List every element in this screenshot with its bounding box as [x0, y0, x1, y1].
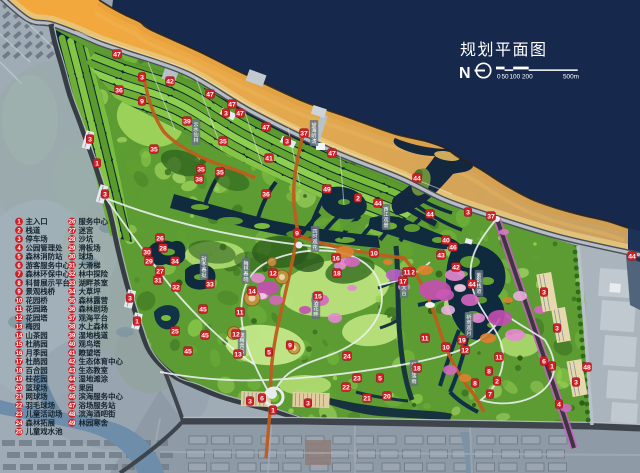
svg-text:羽毛球场: 羽毛球场: [26, 401, 56, 410]
svg-text:科普展示平台: 科普展示平台: [26, 278, 71, 287]
svg-text:11: 11: [16, 307, 23, 313]
svg-text:23: 23: [16, 412, 23, 418]
svg-text:35: 35: [150, 147, 158, 154]
svg-text:滑板场: 滑板场: [79, 243, 102, 252]
svg-text:5: 5: [267, 350, 271, 357]
svg-text:500m: 500m: [563, 74, 579, 81]
svg-text:栈道: 栈道: [26, 226, 41, 235]
svg-text:44: 44: [628, 254, 636, 261]
svg-text:6: 6: [260, 396, 264, 403]
svg-text:3: 3: [248, 399, 252, 406]
svg-text:19: 19: [16, 377, 23, 383]
svg-text:景观栈桥: 景观栈桥: [25, 287, 56, 296]
svg-text:9: 9: [288, 343, 292, 350]
svg-text:18: 18: [413, 366, 421, 373]
svg-text:森林剧场: 森林剧场: [79, 305, 109, 314]
svg-text:27: 27: [69, 228, 76, 234]
svg-text:47: 47: [206, 92, 214, 99]
svg-text:16: 16: [332, 256, 340, 263]
svg-text:32: 32: [172, 285, 180, 292]
svg-text:瞭望塔: 瞭望塔: [79, 348, 102, 357]
svg-text:球场: 球场: [79, 252, 94, 261]
svg-text:28: 28: [159, 246, 167, 253]
svg-text:林园寒舍: 林园寒舍: [79, 418, 109, 427]
svg-text:9: 9: [295, 231, 299, 238]
svg-text:12: 12: [16, 316, 23, 322]
svg-text:35: 35: [69, 298, 76, 304]
svg-text:望海听涛: 望海听涛: [311, 121, 316, 145]
svg-text:9: 9: [140, 99, 144, 106]
svg-text:12: 12: [461, 348, 469, 355]
svg-text:32: 32: [69, 272, 76, 278]
svg-text:梅林春晓: 梅林春晓: [243, 259, 249, 283]
svg-text:8: 8: [487, 369, 491, 376]
svg-text:3: 3: [88, 137, 92, 144]
svg-text:杜鹃园: 杜鹃园: [26, 340, 48, 349]
svg-text:果园: 果园: [78, 383, 94, 392]
svg-text:山茶园: 山茶园: [26, 331, 48, 340]
svg-text:1: 1: [95, 161, 99, 168]
svg-text:15: 15: [314, 294, 322, 301]
svg-text:35: 35: [216, 170, 224, 177]
svg-text:17: 17: [399, 279, 407, 286]
svg-text:11: 11: [421, 336, 428, 343]
svg-text:24: 24: [343, 354, 351, 361]
svg-text:百合园: 百合园: [26, 366, 48, 375]
svg-text:44: 44: [426, 212, 434, 219]
svg-text:38: 38: [69, 325, 76, 331]
svg-text:48: 48: [69, 412, 76, 418]
svg-text:耐冬春挺: 耐冬春挺: [201, 255, 207, 279]
svg-text:12: 12: [269, 271, 277, 278]
svg-text:观海平台: 观海平台: [79, 313, 109, 322]
svg-text:森林拓展: 森林拓展: [26, 418, 56, 427]
svg-text:湿地栈道: 湿地栈道: [79, 331, 109, 340]
svg-text:47: 47: [69, 403, 76, 409]
svg-text:42: 42: [452, 265, 460, 272]
svg-text:规划平面图: 规划平面图: [460, 41, 548, 59]
svg-text:3: 3: [224, 111, 228, 118]
svg-text:36: 36: [262, 192, 270, 199]
svg-text:森林消防站: 森林消防站: [26, 252, 64, 261]
svg-text:大滑梯: 大滑梯: [79, 261, 102, 270]
svg-text:1: 1: [271, 408, 275, 415]
svg-text:44: 44: [413, 176, 421, 183]
svg-text:21: 21: [16, 395, 23, 401]
svg-text:四时观花: 四时观花: [312, 228, 318, 251]
svg-text:大草坪: 大草坪: [79, 287, 102, 296]
svg-text:10: 10: [370, 251, 378, 258]
svg-text:网球场: 网球场: [26, 392, 49, 401]
svg-text:1: 1: [135, 319, 139, 326]
svg-text:浴场服务站: 浴场服务站: [79, 401, 117, 410]
svg-text:39: 39: [183, 119, 191, 126]
svg-text:13: 13: [234, 352, 242, 359]
svg-text:杜鹃园: 杜鹃园: [26, 357, 48, 366]
svg-text:8: 8: [473, 381, 477, 388]
svg-text:30: 30: [69, 255, 76, 261]
svg-text:36: 36: [69, 307, 76, 313]
svg-text:33: 33: [69, 281, 76, 287]
svg-text:主入口: 主入口: [26, 217, 48, 226]
svg-text:47: 47: [328, 151, 336, 158]
svg-text:N: N: [459, 65, 471, 82]
svg-text:林中探险: 林中探险: [79, 270, 109, 279]
svg-text:服务中心: 服务中心: [79, 217, 109, 226]
svg-text:3: 3: [285, 139, 289, 146]
svg-text:3: 3: [103, 192, 107, 199]
svg-text:18: 18: [333, 271, 341, 278]
svg-text:游客服务中心: 游客服务中心: [26, 261, 71, 270]
svg-text:3: 3: [140, 75, 144, 82]
svg-text:37: 37: [300, 131, 308, 138]
svg-text:湿地滩涂: 湿地滩涂: [79, 375, 109, 384]
svg-text:46: 46: [449, 245, 457, 252]
svg-text:20: 20: [16, 386, 23, 392]
svg-text:27: 27: [156, 269, 164, 276]
svg-text:49: 49: [69, 421, 76, 427]
svg-text:35: 35: [197, 167, 205, 174]
svg-text:公园管理处: 公园管理处: [26, 243, 64, 252]
svg-text:0: 0: [497, 74, 501, 81]
svg-text:沙坑: 沙坑: [79, 235, 94, 244]
svg-text:3: 3: [542, 290, 546, 297]
svg-text:10: 10: [442, 345, 450, 352]
svg-text:33: 33: [206, 282, 214, 289]
svg-text:36: 36: [115, 88, 123, 95]
svg-text:22: 22: [16, 403, 23, 409]
svg-text:西江观景: 西江观景: [383, 206, 389, 229]
svg-text:生态教室: 生态教室: [79, 366, 109, 375]
svg-text:3: 3: [574, 380, 578, 387]
svg-text:14: 14: [248, 289, 256, 296]
svg-text:10: 10: [16, 298, 23, 304]
svg-text:44: 44: [374, 201, 382, 208]
svg-text:5: 5: [378, 376, 382, 383]
svg-text:21: 21: [363, 396, 371, 403]
svg-text:3: 3: [306, 401, 310, 408]
svg-text:45: 45: [201, 333, 209, 340]
svg-text:24: 24: [16, 421, 23, 427]
svg-text:41: 41: [265, 156, 273, 163]
svg-text:23: 23: [353, 376, 361, 383]
svg-text:水上森林: 水上森林: [79, 322, 109, 331]
svg-text:花园桥: 花园桥: [26, 296, 49, 305]
svg-text:花园路: 花园路: [26, 305, 49, 314]
svg-text:梅园: 梅园: [26, 322, 41, 331]
svg-text:34: 34: [171, 259, 179, 266]
svg-text:儿童戏水池: 儿童戏水池: [25, 427, 64, 436]
svg-text:25: 25: [171, 329, 179, 336]
svg-text:41: 41: [69, 351, 76, 357]
svg-text:22: 22: [342, 385, 350, 392]
svg-text:28: 28: [69, 237, 76, 243]
svg-text:31: 31: [154, 278, 162, 285]
svg-text:16: 16: [16, 351, 23, 357]
svg-text:4: 4: [557, 402, 561, 409]
svg-text:1: 1: [550, 364, 554, 371]
svg-text:紫影栈道: 紫影栈道: [476, 272, 481, 295]
svg-text:花园塔: 花园塔: [26, 313, 49, 322]
svg-text:桂花园: 桂花园: [25, 375, 48, 384]
svg-text:17: 17: [16, 360, 23, 366]
svg-text:40: 40: [69, 342, 76, 348]
svg-text:200: 200: [522, 74, 533, 81]
svg-text:39: 39: [69, 333, 76, 339]
svg-text:祈雨观月: 祈雨观月: [466, 313, 472, 337]
svg-text:观鸟塔: 观鸟塔: [79, 340, 102, 349]
svg-text:6: 6: [542, 359, 546, 366]
svg-text:2: 2: [356, 196, 360, 203]
svg-text:滨海服务中心: 滨海服务中心: [79, 392, 124, 401]
svg-text:50: 50: [502, 74, 510, 81]
svg-text:30: 30: [143, 250, 151, 257]
svg-text:29: 29: [69, 246, 76, 252]
svg-text:34: 34: [69, 290, 76, 296]
svg-text:47: 47: [113, 52, 121, 59]
svg-text:儿童活动场: 儿童活动场: [25, 410, 64, 419]
svg-text:13: 13: [16, 325, 23, 331]
svg-text:7: 7: [488, 392, 492, 399]
svg-text:月季园: 月季园: [25, 348, 48, 357]
svg-text:森林露营: 森林露营: [79, 296, 109, 305]
svg-text:44: 44: [69, 377, 76, 383]
svg-text:46: 46: [69, 395, 76, 401]
svg-text:44: 44: [468, 282, 476, 289]
svg-text:3: 3: [466, 210, 470, 217]
svg-text:2: 2: [495, 379, 499, 386]
svg-text:森林环保中心: 森林环保中心: [26, 270, 71, 279]
svg-text:49: 49: [323, 187, 331, 194]
svg-text:3: 3: [555, 326, 559, 333]
svg-text:11: 11: [236, 310, 243, 317]
svg-text:29: 29: [145, 259, 153, 266]
svg-text:15: 15: [16, 342, 23, 348]
svg-text:26: 26: [69, 220, 76, 226]
svg-text:18: 18: [16, 368, 23, 374]
svg-text:31: 31: [69, 263, 76, 269]
svg-text:37: 37: [69, 316, 76, 322]
svg-text:25: 25: [16, 430, 23, 436]
svg-text:45: 45: [69, 386, 76, 392]
svg-text:45: 45: [199, 307, 207, 314]
svg-text:停车场: 停车场: [26, 235, 49, 244]
svg-text:3: 3: [128, 296, 132, 303]
svg-text:45: 45: [184, 349, 192, 356]
svg-text:湖畔茶室: 湖畔茶室: [79, 278, 109, 287]
svg-text:47: 47: [262, 125, 270, 132]
svg-text:38: 38: [195, 177, 203, 184]
svg-text:35: 35: [219, 139, 227, 146]
svg-text:生态体育中心: 生态体育中心: [79, 357, 124, 366]
svg-text:12: 12: [232, 332, 240, 339]
svg-text:迷宫: 迷宫: [78, 226, 94, 235]
svg-text:19: 19: [458, 338, 466, 345]
svg-text:47: 47: [236, 111, 244, 118]
svg-text:42: 42: [69, 360, 76, 366]
svg-text:47: 47: [228, 102, 236, 109]
svg-text:37: 37: [487, 214, 495, 221]
svg-text:43: 43: [437, 253, 445, 260]
svg-text:20: 20: [383, 394, 391, 401]
svg-text:滨海酒吧街: 滨海酒吧街: [79, 410, 117, 419]
svg-text:11: 11: [495, 355, 502, 362]
svg-text:云水仙林: 云水仙林: [193, 121, 199, 144]
svg-text:26: 26: [156, 236, 164, 243]
svg-text:篮球场: 篮球场: [25, 383, 49, 392]
svg-text:42: 42: [166, 79, 174, 86]
svg-text:11: 11: [403, 270, 410, 277]
svg-text:43: 43: [69, 368, 76, 374]
svg-text:14: 14: [16, 333, 23, 339]
svg-text:100: 100: [510, 74, 521, 81]
svg-text:48: 48: [583, 365, 591, 372]
